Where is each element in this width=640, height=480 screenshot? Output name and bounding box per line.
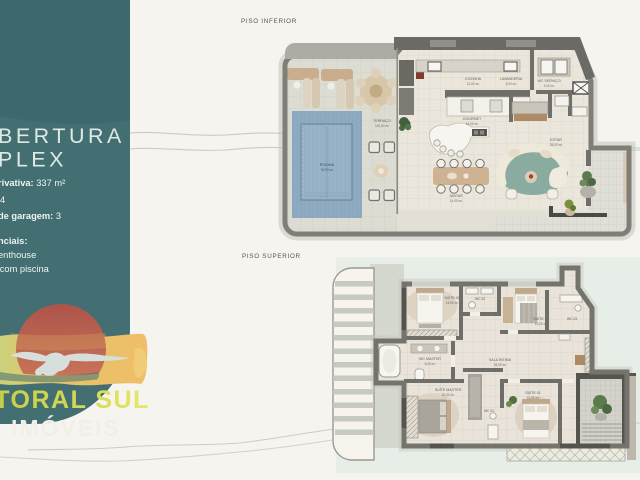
svg-text:COZINHA: COZINHA bbox=[465, 77, 482, 81]
svg-text:BERTURA: BERTURA bbox=[0, 124, 125, 148]
svg-text:14,00 m²: 14,00 m² bbox=[450, 199, 463, 203]
svg-text:14,50 m²: 14,50 m² bbox=[446, 301, 459, 305]
svg-text:SALA ÍNTIMA: SALA ÍNTIMA bbox=[489, 358, 512, 362]
svg-text:IMÓVEIS: IMÓVEIS bbox=[11, 414, 121, 441]
svg-text:PLEX: PLEX bbox=[0, 148, 67, 172]
svg-text:PISO INFERIOR: PISO INFERIOR bbox=[241, 18, 297, 25]
svg-text:LAVANDERIA: LAVANDERIA bbox=[500, 77, 523, 81]
svg-text:de garagem: 3: de garagem: 3 bbox=[0, 211, 61, 221]
svg-text:GOURMET: GOURMET bbox=[463, 117, 482, 121]
svg-text:110,00 m²: 110,00 m² bbox=[375, 124, 389, 128]
svg-text:30,00 m²: 30,00 m² bbox=[321, 168, 334, 172]
svg-text:JANTAR: JANTAR bbox=[449, 194, 463, 198]
svg-text:enthouse: enthouse bbox=[0, 250, 36, 260]
svg-text:ESTAR: ESTAR bbox=[550, 138, 562, 142]
svg-text:WC 01: WC 01 bbox=[484, 409, 494, 413]
svg-text:SUÍTE 02: SUÍTE 02 bbox=[444, 296, 460, 300]
svg-text:rivativa: 337 m²: rivativa: 337 m² bbox=[0, 178, 65, 188]
svg-text:PISO SUPERIOR: PISO SUPERIOR bbox=[242, 253, 301, 260]
svg-text:13,00 m²: 13,00 m² bbox=[527, 396, 540, 400]
svg-text:o com piscina: o com piscina bbox=[0, 264, 50, 274]
svg-text:6,00 m²: 6,00 m² bbox=[425, 362, 436, 366]
svg-text:WC 03: WC 03 bbox=[567, 317, 577, 321]
svg-text:PISCINA: PISCINA bbox=[320, 163, 335, 167]
svg-text:SUÍTE MASTER: SUÍTE MASTER bbox=[435, 388, 462, 392]
svg-text:WC SERVIÇO: WC SERVIÇO bbox=[537, 79, 560, 83]
svg-text:18,00 m²: 18,00 m² bbox=[466, 122, 479, 126]
svg-text:3,00 m²: 3,00 m² bbox=[544, 84, 555, 88]
svg-text:20,00 m²: 20,00 m² bbox=[442, 393, 455, 397]
svg-text:12,00 m²: 12,00 m² bbox=[467, 82, 480, 86]
svg-text:5,00 m²: 5,00 m² bbox=[506, 82, 517, 86]
svg-text:25,00 m²: 25,00 m² bbox=[550, 143, 563, 147]
svg-text:WC 02: WC 02 bbox=[475, 297, 485, 301]
svg-text:4: 4 bbox=[0, 195, 5, 205]
svg-text:SUÍTE 01: SUÍTE 01 bbox=[525, 391, 541, 395]
svg-text:TERRAÇO: TERRAÇO bbox=[373, 119, 391, 123]
svg-text:16,00 m²: 16,00 m² bbox=[494, 363, 507, 367]
svg-text:LITORAL SUL: LITORAL SUL bbox=[0, 386, 150, 414]
svg-text:nciais:: nciais: bbox=[0, 236, 27, 246]
svg-text:WC MASTER: WC MASTER bbox=[419, 357, 441, 361]
